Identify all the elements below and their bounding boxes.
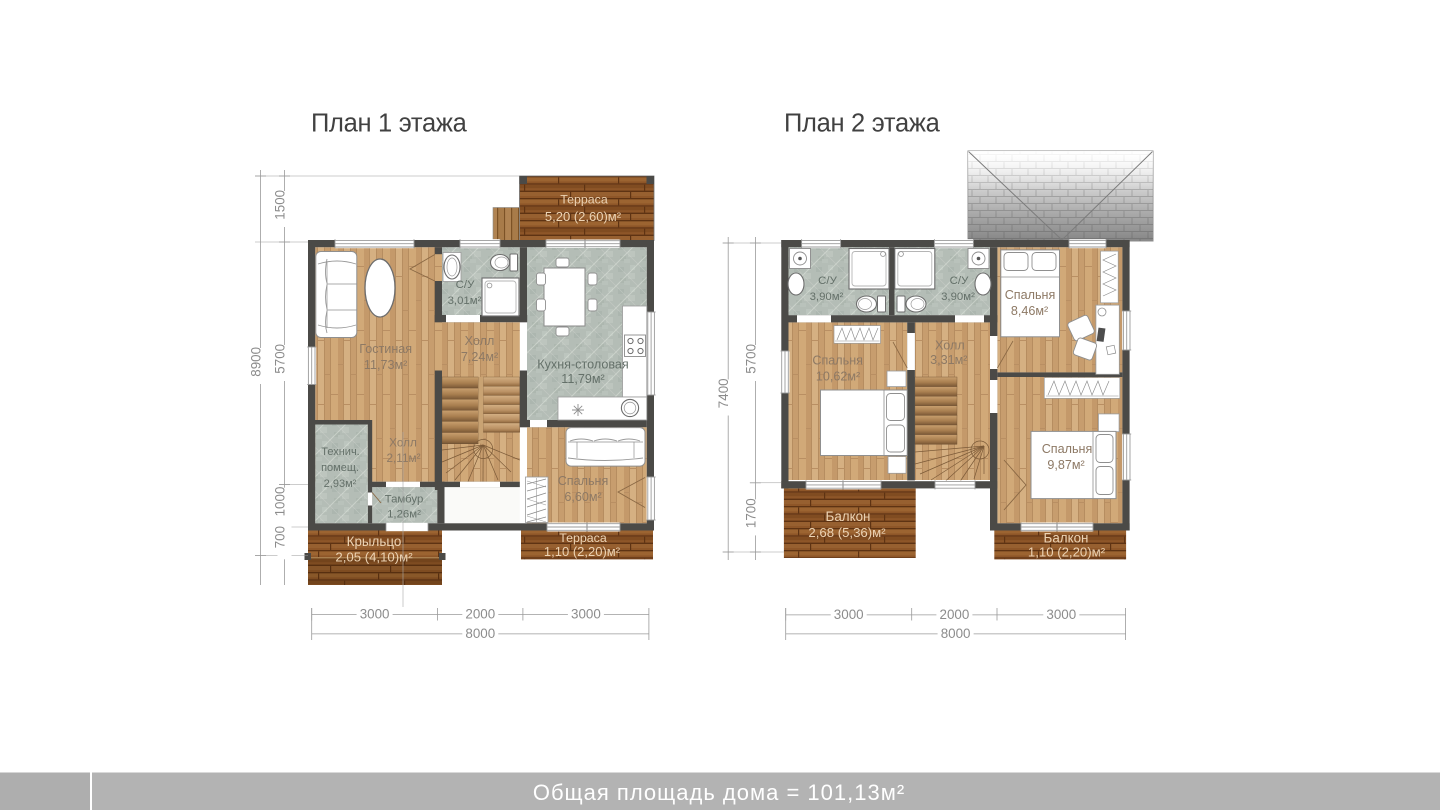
svg-text:8,46м²: 8,46м² (1011, 304, 1048, 318)
svg-text:Терраса: Терраса (560, 193, 608, 207)
svg-text:Спальня: Спальня (812, 354, 863, 368)
svg-text:2000: 2000 (465, 607, 495, 622)
svg-text:3000: 3000 (360, 607, 390, 622)
svg-text:3,31м²: 3,31м² (930, 353, 967, 367)
svg-text:6,60м²: 6,60м² (564, 490, 601, 504)
svg-text:8000: 8000 (465, 626, 495, 641)
svg-text:Крыльцо: Крыльцо (347, 534, 402, 549)
svg-text:1,10 (2,20)м²: 1,10 (2,20)м² (1028, 544, 1106, 559)
svg-text:7400: 7400 (716, 378, 731, 408)
svg-text:8000: 8000 (941, 626, 971, 641)
svg-text:Балкон: Балкон (1044, 531, 1089, 546)
svg-text:Тамбур: Тамбур (385, 494, 424, 506)
svg-text:2,11м²: 2,11м² (386, 451, 420, 465)
svg-text:1000: 1000 (273, 487, 288, 517)
svg-text:3,01м²: 3,01м² (448, 295, 482, 307)
svg-text:1,26м²: 1,26м² (387, 509, 421, 521)
svg-text:С/У: С/У (456, 279, 475, 291)
svg-text:5700: 5700 (273, 344, 288, 374)
svg-text:План 2 этажа: План 2 этажа (784, 110, 941, 138)
svg-text:2000: 2000 (940, 607, 970, 622)
svg-text:Спальня: Спальня (558, 474, 609, 488)
svg-text:Гостиная: Гостиная (359, 342, 412, 356)
svg-text:помещ.: помещ. (321, 462, 359, 474)
svg-text:3,90м²: 3,90м² (941, 291, 975, 303)
svg-text:Кухня-столовая: Кухня-столовая (537, 358, 628, 372)
svg-text:9,87м²: 9,87м² (1047, 458, 1084, 472)
svg-text:3000: 3000 (1046, 607, 1076, 622)
svg-text:3000: 3000 (834, 607, 864, 622)
svg-text:Терраса: Терраса (559, 531, 607, 545)
svg-text:1700: 1700 (743, 498, 758, 528)
svg-text:Спальня: Спальня (1005, 288, 1056, 302)
svg-text:3,90м²: 3,90м² (810, 291, 844, 303)
svg-text:2,68 (5,36)м²: 2,68 (5,36)м² (808, 525, 886, 540)
svg-text:8900: 8900 (249, 347, 264, 377)
svg-text:С/У: С/У (818, 275, 837, 287)
svg-text:Холл: Холл (465, 334, 495, 348)
svg-text:11,79м²: 11,79м² (561, 372, 604, 386)
svg-text:10,62м²: 10,62м² (816, 370, 860, 384)
svg-text:700: 700 (273, 526, 288, 548)
svg-text:3000: 3000 (571, 607, 601, 622)
svg-text:Технич.: Технич. (321, 446, 359, 458)
svg-text:С/У: С/У (950, 275, 969, 287)
svg-text:Общая площадь дома = 101,13м²: Общая площадь дома = 101,13м² (533, 780, 905, 805)
svg-text:5,20 (2,60)м²: 5,20 (2,60)м² (545, 209, 622, 224)
svg-text:5700: 5700 (743, 344, 758, 374)
svg-text:План 1 этажа: План 1 этажа (311, 110, 468, 138)
svg-text:2,93м²: 2,93м² (324, 478, 357, 490)
svg-text:7,24м²: 7,24м² (461, 350, 498, 364)
svg-text:1500: 1500 (273, 190, 288, 220)
svg-text:1,10 (2,20)м²: 1,10 (2,20)м² (544, 544, 621, 559)
svg-text:Спальня: Спальня (1042, 442, 1093, 456)
svg-text:Балкон: Балкон (826, 509, 871, 524)
svg-text:Холл: Холл (935, 339, 965, 353)
svg-text:2,05 (4,10)м²: 2,05 (4,10)м² (335, 550, 413, 565)
svg-text:11,73м²: 11,73м² (364, 358, 407, 372)
